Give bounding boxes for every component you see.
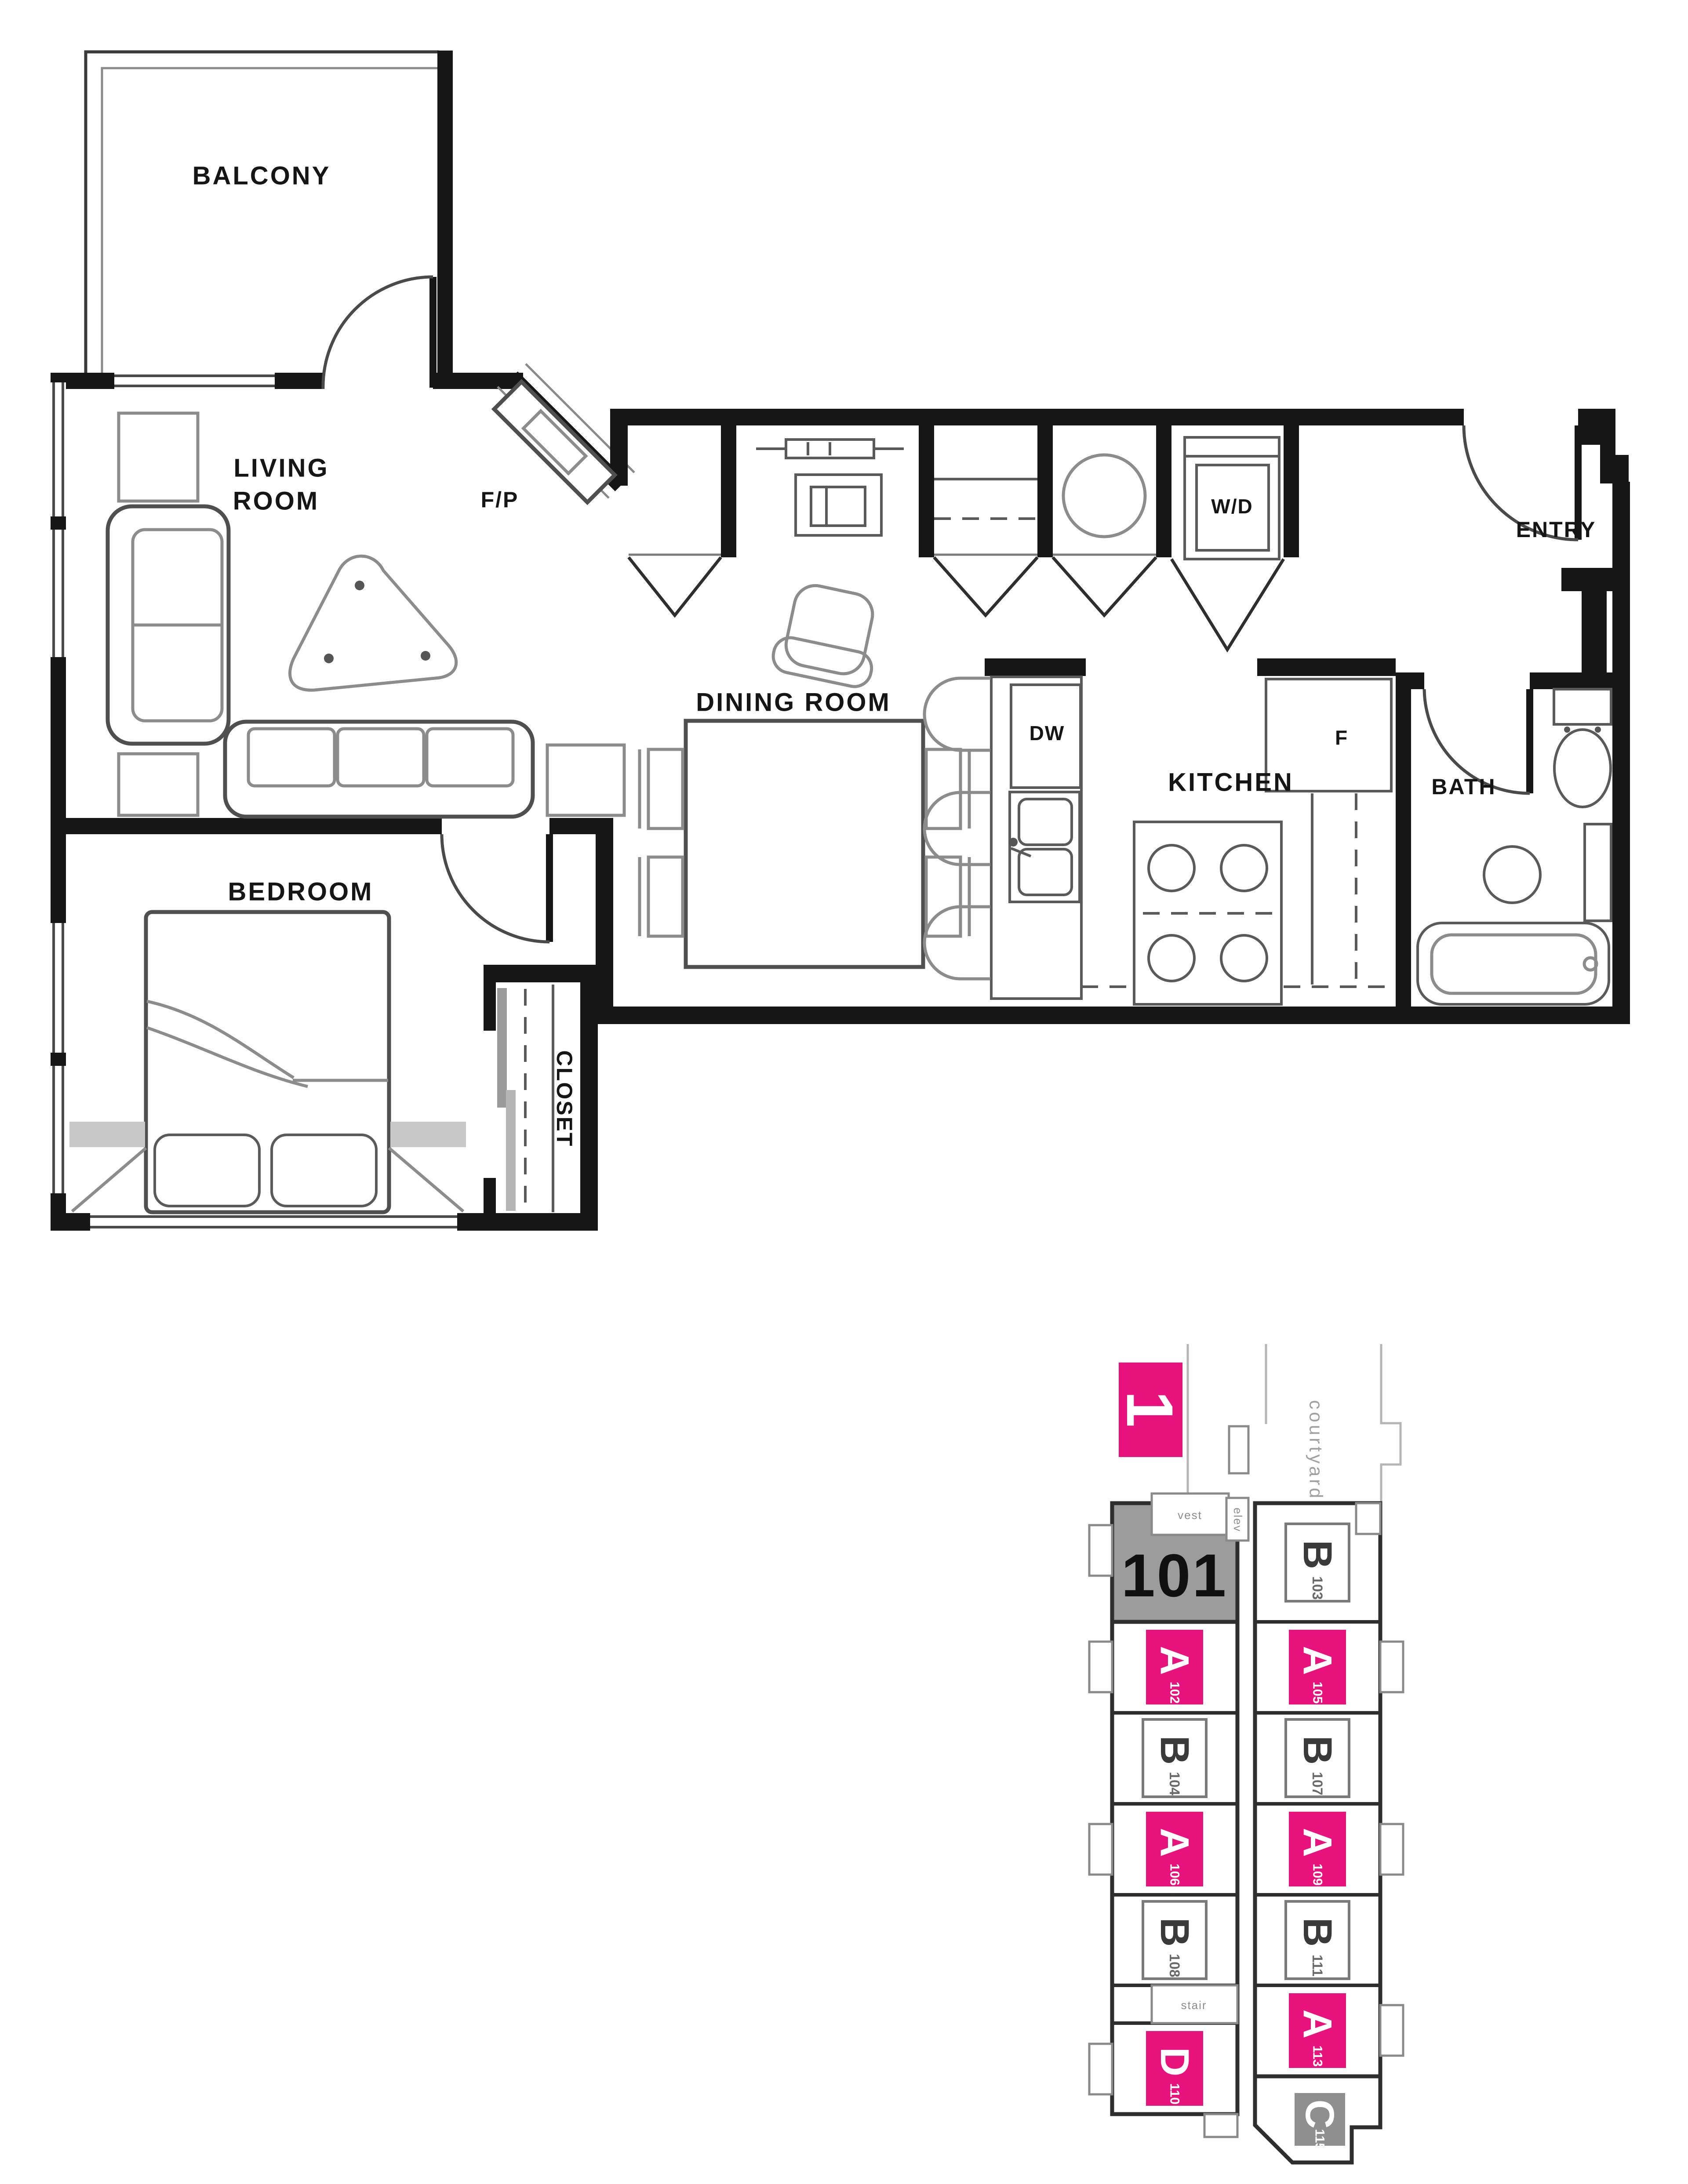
svg-text:111: 111	[1310, 1955, 1325, 1977]
unit-badge-A: A102	[1146, 1630, 1203, 1704]
end-table	[547, 745, 624, 815]
unit-badge-A: A109	[1289, 1812, 1346, 1886]
balcony-door	[323, 277, 433, 389]
floor-plan-drawing: W/D	[0, 0, 1688, 2184]
unit-badge-A: A106	[1146, 1812, 1203, 1886]
closet-interior	[502, 985, 553, 1212]
living-room-label-line1: LIVING	[233, 454, 329, 483]
svg-text:102: 102	[1168, 1682, 1182, 1704]
fridge-label: F	[1335, 726, 1348, 749]
entry-label: ENTRY	[1516, 517, 1597, 542]
bedroom-label: BEDROOM	[228, 878, 374, 906]
floor-plan-page: W/D	[0, 0, 1688, 2184]
svg-text:103: 103	[1310, 1576, 1325, 1599]
bedroom-door	[442, 834, 549, 942]
washer-dryer-label: W/D	[1211, 495, 1253, 518]
svg-text:A: A	[1152, 1828, 1197, 1857]
living-room-label-line2: ROOM	[233, 487, 319, 516]
kitchen-label: KITCHEN	[1168, 768, 1294, 797]
end-table	[119, 413, 198, 501]
unit-badge-A: A113	[1289, 1993, 1346, 2068]
svg-text:A: A	[1152, 1646, 1197, 1675]
svg-text:108: 108	[1167, 1954, 1182, 1977]
loveseat	[108, 506, 229, 744]
end-table	[119, 754, 198, 815]
desk	[756, 440, 904, 535]
svg-text:B: B	[1152, 1736, 1197, 1765]
unit-badge-B: B108	[1143, 1901, 1206, 1979]
window-balcony-door	[114, 373, 275, 389]
sofa	[225, 722, 533, 817]
unit-badge-B: B104	[1143, 1719, 1206, 1797]
dining-table	[686, 721, 923, 967]
level-badge: 1	[1113, 1363, 1187, 1457]
svg-text:A: A	[1295, 2010, 1340, 2039]
key-plan: 1 lobby courtyard vest elev stair	[1089, 1344, 1403, 2162]
stove	[1134, 822, 1281, 1004]
fireplace-label: F/P	[481, 487, 519, 512]
desk-chair	[770, 580, 886, 690]
washer-dryer: W/D	[1171, 437, 1284, 650]
svg-text:D: D	[1152, 2047, 1197, 2076]
coffee-table	[290, 556, 456, 690]
dining-furniture	[640, 721, 969, 967]
svg-text:C: C	[1297, 2100, 1342, 2129]
unit-badge-B: B111	[1286, 1901, 1349, 1979]
corridor-box	[1229, 1426, 1248, 1473]
kitchen-fixtures: DW F	[924, 677, 1393, 1004]
svg-text:104: 104	[1167, 1772, 1182, 1795]
bath-sink	[1484, 847, 1540, 903]
dining-room-label: DINING ROOM	[696, 688, 891, 717]
site-label: courtyard	[1306, 1400, 1327, 1501]
svg-text:107: 107	[1310, 1772, 1325, 1795]
balcony-label: BALCONY	[193, 162, 331, 190]
living-room-furniture	[108, 413, 624, 817]
window-left-1	[51, 382, 66, 516]
svg-text:B: B	[1295, 1540, 1340, 1569]
key-plan-right-column: B103 A105 B107 A109 B111 A113	[1255, 1503, 1403, 2162]
vestibule-label: vest	[1178, 1508, 1202, 1522]
unit-badge-B: B107	[1286, 1719, 1349, 1797]
svg-text:113: 113	[1310, 2046, 1325, 2067]
window-left-2	[51, 530, 66, 657]
bedroom-furniture	[69, 912, 553, 1212]
svg-text:115: 115	[1313, 2129, 1327, 2150]
bathtub	[1418, 923, 1609, 1004]
svg-text:110: 110	[1168, 2083, 1182, 2104]
key-plan-site-lines	[1188, 1344, 1401, 1503]
balcony-walls	[86, 51, 453, 389]
svg-text:106: 106	[1168, 1864, 1182, 1886]
svg-text:B: B	[1295, 1918, 1340, 1947]
closet-label: CLOSET	[552, 1050, 577, 1148]
window-left-3	[51, 923, 66, 1053]
unit-badge-B: B103	[1286, 1524, 1349, 1601]
unit-101-number: 101	[1121, 1542, 1228, 1610]
key-plan-left-column: vest elev stair 101 A102 B104 A106 B108	[1089, 1494, 1248, 2137]
bath-label: BATH	[1431, 774, 1496, 799]
window-left-4	[51, 1066, 66, 1193]
elevator-label: elev	[1231, 1508, 1244, 1532]
bed	[146, 912, 389, 1212]
room-labels: BALCONY LIVING ROOM F/P ENTRY DINING ROO…	[193, 162, 1597, 1148]
svg-text:A: A	[1295, 1646, 1340, 1675]
svg-text:A: A	[1295, 1828, 1340, 1857]
svg-text:B: B	[1152, 1918, 1197, 1947]
svg-text:105: 105	[1310, 1682, 1325, 1704]
unit-badge-A: A105	[1289, 1630, 1346, 1704]
dishwasher-label: DW	[1030, 722, 1065, 745]
unit-badge-C: C115	[1295, 2093, 1345, 2150]
nightstand	[390, 1122, 466, 1147]
svg-text:B: B	[1295, 1736, 1340, 1765]
level-badge-number: 1	[1113, 1391, 1187, 1427]
unit-badge-D: D110	[1146, 2031, 1203, 2106]
bath-fixtures	[1418, 689, 1611, 1004]
kitchen-sink	[1009, 792, 1080, 902]
window-bedroom	[90, 1213, 457, 1231]
toilet	[1554, 689, 1611, 807]
vanity	[1585, 824, 1611, 921]
stair-label: stair	[1181, 1999, 1207, 2012]
floor-plan: W/D	[51, 51, 1630, 1231]
nightstand	[69, 1122, 145, 1147]
fireplace	[494, 382, 615, 502]
svg-text:109: 109	[1310, 1864, 1325, 1886]
